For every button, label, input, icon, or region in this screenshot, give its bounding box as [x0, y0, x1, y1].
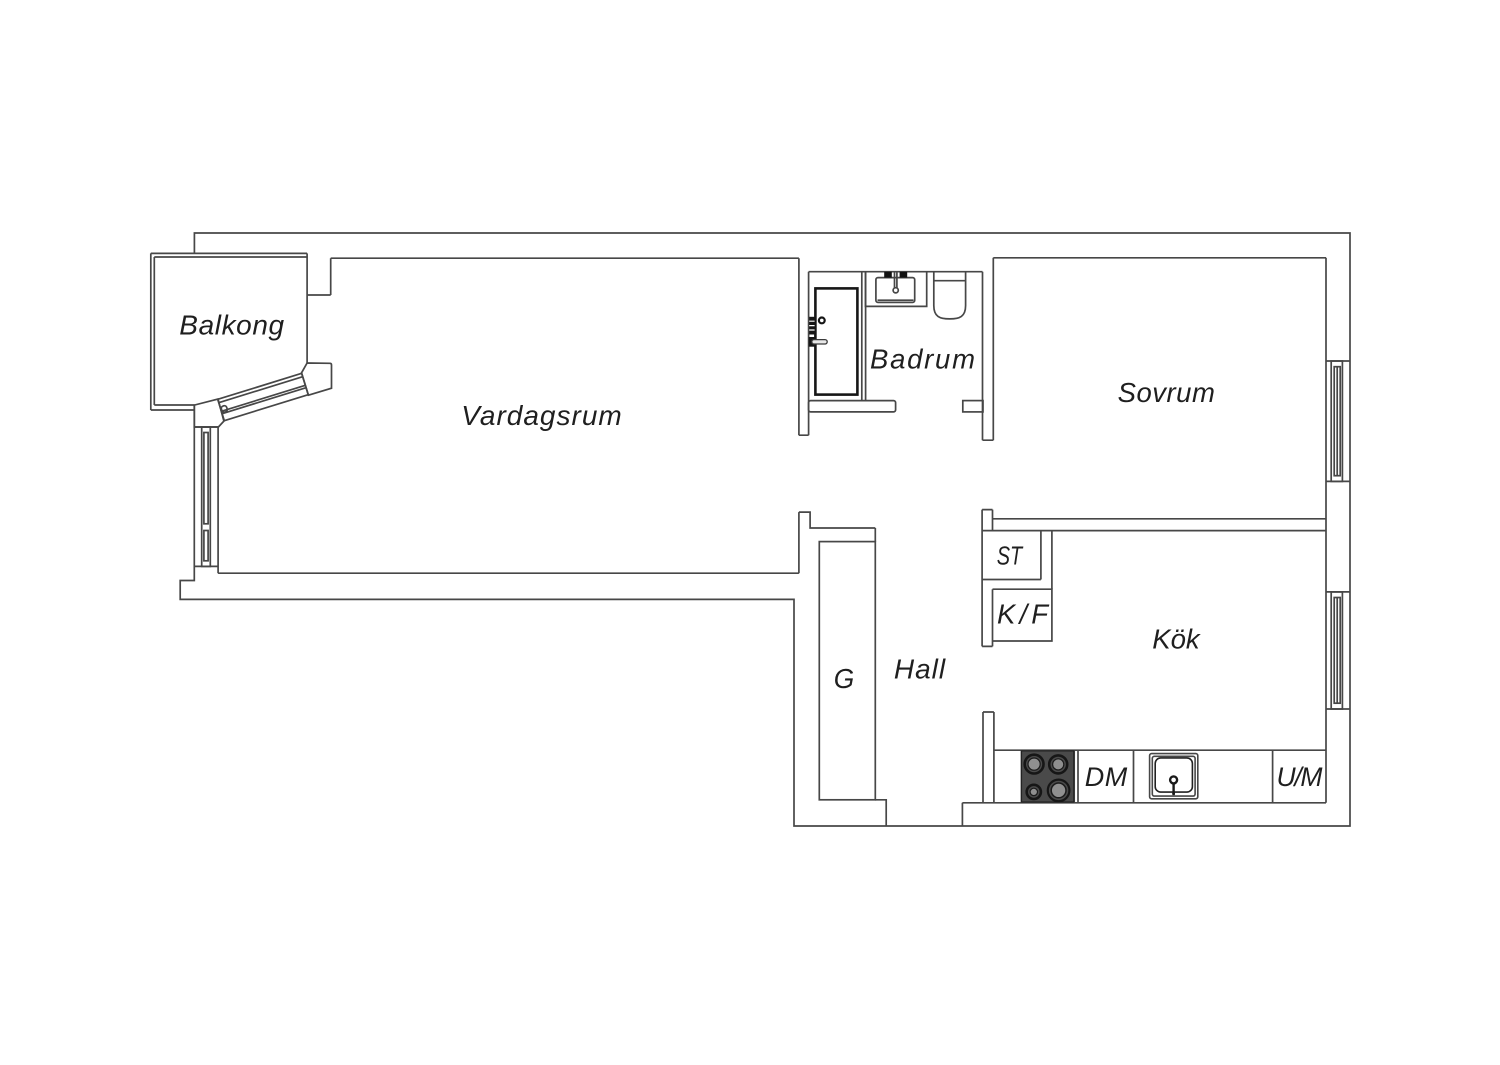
- svg-text:Vardagsrum: Vardagsrum: [461, 400, 622, 431]
- svg-text:DM: DM: [1085, 762, 1128, 792]
- svg-text:Kök: Kök: [1152, 623, 1201, 654]
- svg-text:U/M: U/M: [1277, 762, 1324, 792]
- svg-text:Sovrum: Sovrum: [1118, 377, 1216, 408]
- svg-text:G: G: [834, 663, 855, 694]
- svg-text:ST: ST: [997, 540, 1024, 570]
- svg-text:Badrum: Badrum: [870, 344, 975, 375]
- svg-text:Hall: Hall: [894, 653, 946, 684]
- svg-text:K/F: K/F: [997, 599, 1050, 630]
- svg-text:Balkong: Balkong: [179, 310, 284, 341]
